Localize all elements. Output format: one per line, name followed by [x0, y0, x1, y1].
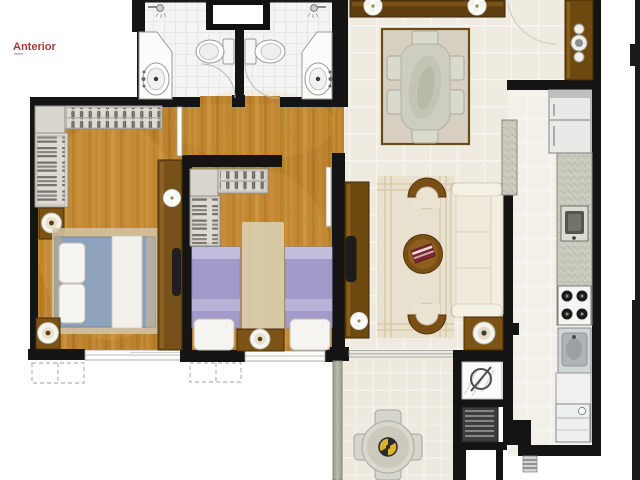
svg-text:Anterior: Anterior	[13, 41, 57, 53]
